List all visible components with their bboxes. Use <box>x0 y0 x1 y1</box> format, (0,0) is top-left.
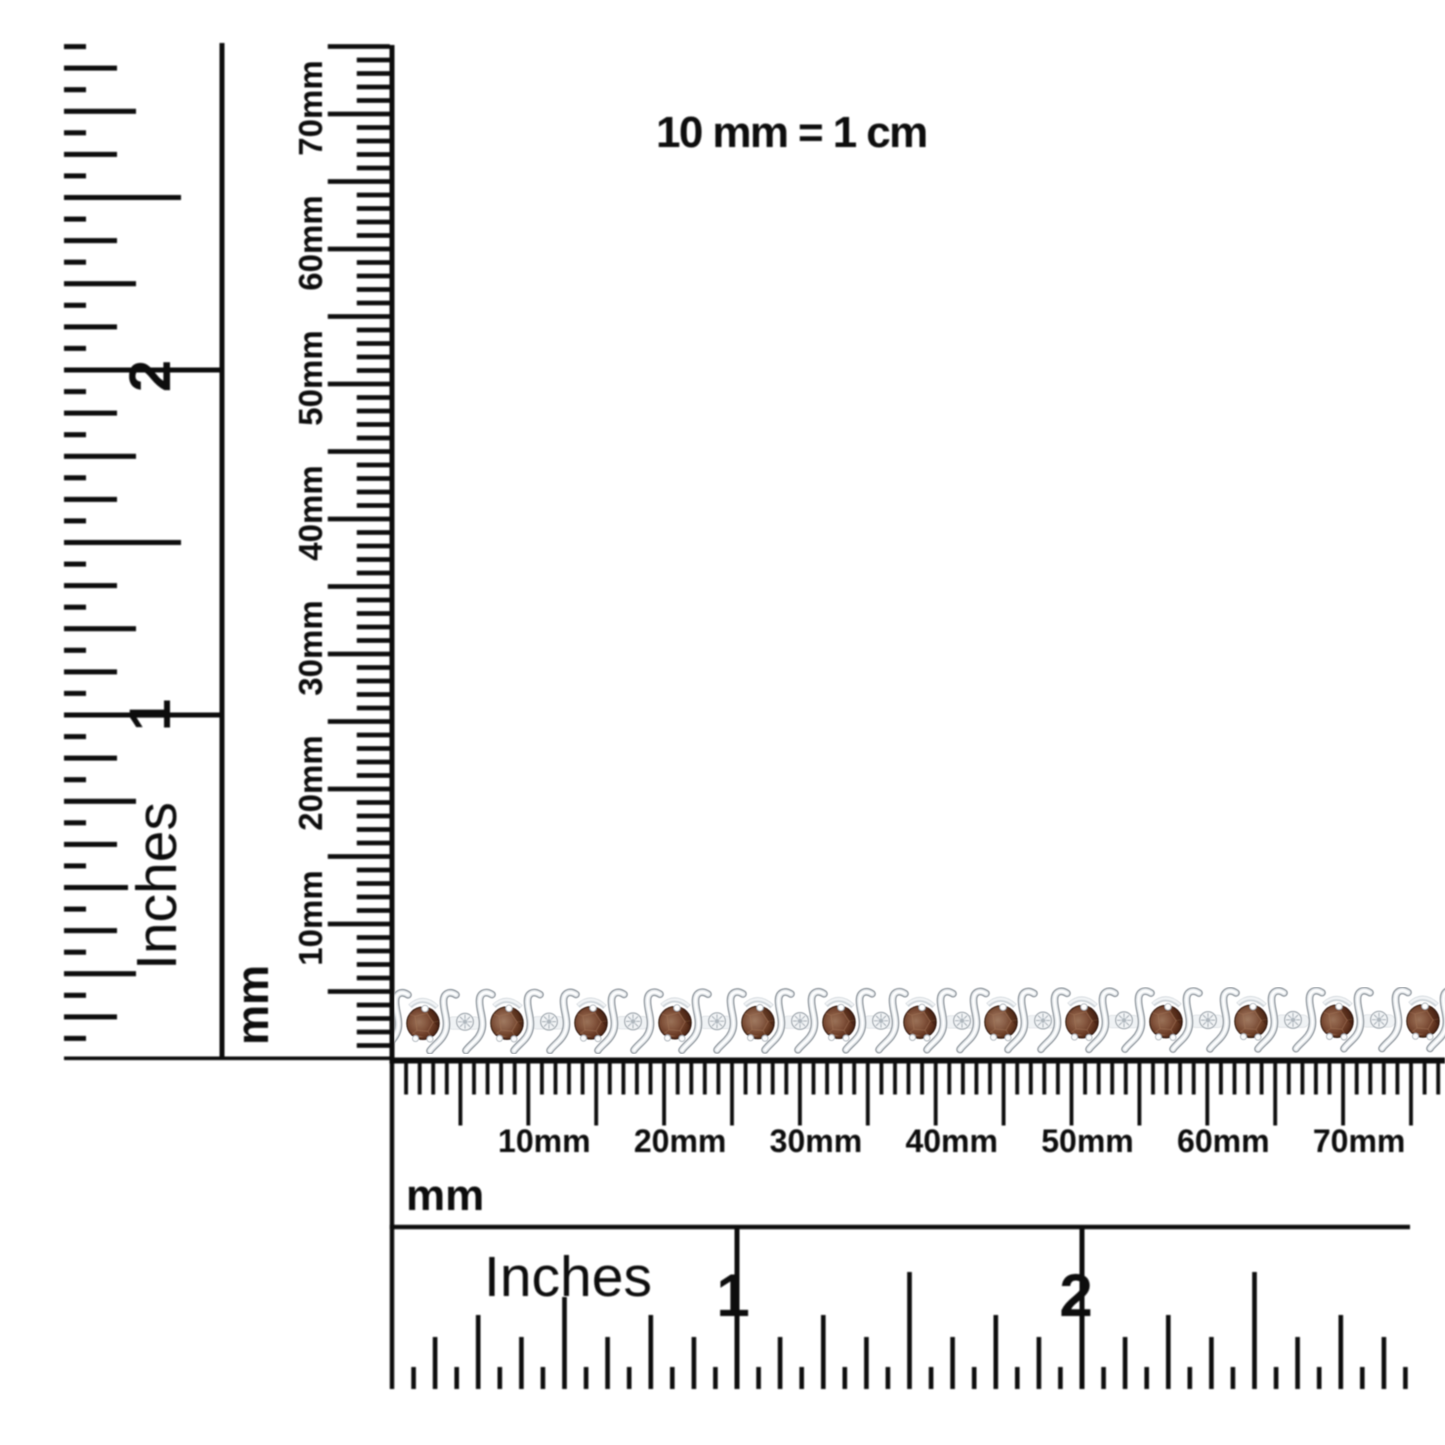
svg-text:40mm: 40mm <box>905 1123 998 1159</box>
svg-text:10mm: 10mm <box>292 870 329 965</box>
svg-text:50mm: 50mm <box>1041 1123 1134 1159</box>
svg-text:20mm: 20mm <box>292 735 329 830</box>
svg-text:mm: mm <box>406 1171 484 1220</box>
svg-text:10mm: 10mm <box>498 1123 591 1159</box>
svg-text:30mm: 30mm <box>770 1123 863 1159</box>
svg-text:70mm: 70mm <box>292 60 329 155</box>
svg-text:40mm: 40mm <box>292 465 329 560</box>
svg-text:50mm: 50mm <box>292 330 329 425</box>
svg-text:20mm: 20mm <box>634 1123 727 1159</box>
svg-text:60mm: 60mm <box>292 195 329 290</box>
svg-text:1: 1 <box>716 1262 749 1329</box>
svg-text:60mm: 60mm <box>1177 1123 1270 1159</box>
svg-text:2: 2 <box>1059 1262 1092 1329</box>
svg-text:70mm: 70mm <box>1313 1123 1406 1159</box>
svg-text:mm: mm <box>227 965 278 1045</box>
svg-text:10 mm = 1 cm: 10 mm = 1 cm <box>656 108 927 157</box>
svg-text:1: 1 <box>118 699 183 731</box>
svg-text:Inches: Inches <box>125 802 189 970</box>
svg-text:30mm: 30mm <box>292 600 329 695</box>
svg-text:Inches: Inches <box>484 1245 652 1309</box>
svg-text:2: 2 <box>118 360 183 392</box>
